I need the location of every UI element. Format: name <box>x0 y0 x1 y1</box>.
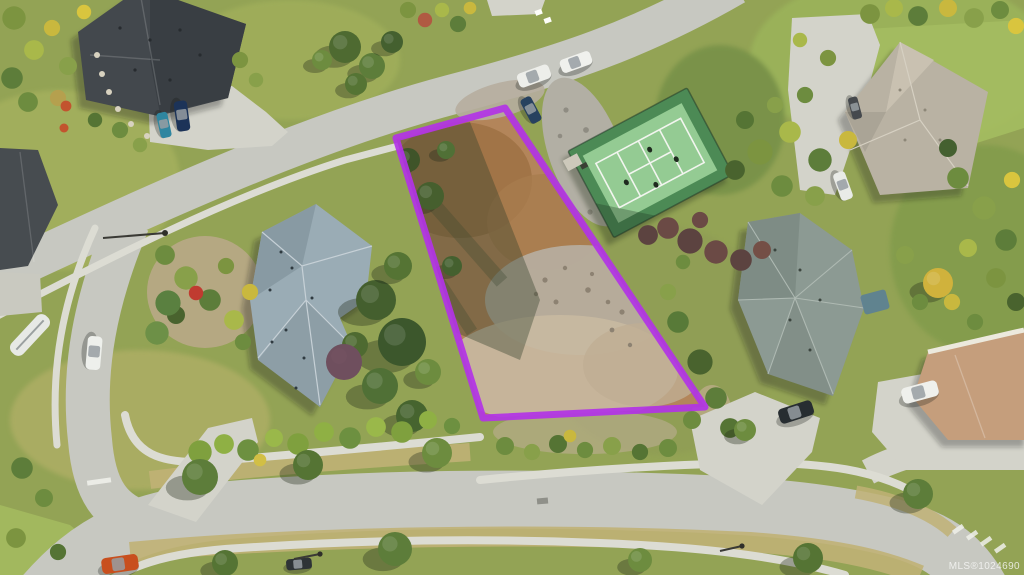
bush <box>18 92 38 112</box>
vent <box>774 249 777 252</box>
bush <box>964 8 984 28</box>
vent <box>118 26 121 29</box>
bush <box>400 2 416 18</box>
rubble-stone <box>590 272 594 276</box>
bush <box>2 6 25 29</box>
bush <box>912 294 928 310</box>
bush <box>218 258 234 274</box>
flower-bush <box>60 124 69 133</box>
bush <box>683 411 701 429</box>
vent <box>280 251 283 254</box>
vent <box>198 53 201 56</box>
vent <box>168 78 171 81</box>
bush <box>676 255 690 269</box>
bush <box>391 421 413 443</box>
bush <box>632 444 648 460</box>
vent <box>904 139 907 142</box>
lamp-head <box>162 230 168 236</box>
bush <box>419 411 437 429</box>
stepping-stone <box>94 52 100 58</box>
bush <box>839 131 857 149</box>
bush <box>725 160 745 180</box>
bush <box>242 284 258 300</box>
vent <box>819 299 822 302</box>
bush <box>660 284 676 300</box>
bush <box>995 229 1017 251</box>
aerial-scene: MLS®1024690 <box>0 0 1024 575</box>
stepping-stone <box>106 89 112 95</box>
bush <box>265 429 283 447</box>
dark-shrub <box>657 217 679 239</box>
bush <box>797 87 813 103</box>
storm-drain <box>537 497 548 504</box>
bush <box>908 6 928 26</box>
bush <box>435 3 449 17</box>
rubble-stone <box>585 287 591 293</box>
dark-shrub <box>677 228 702 253</box>
bush <box>687 349 712 374</box>
bush <box>736 111 754 129</box>
bush <box>1 67 23 89</box>
bush <box>77 5 91 19</box>
lamp-head <box>317 551 322 556</box>
bush <box>747 139 772 164</box>
bush <box>112 122 128 138</box>
bush <box>991 1 1009 19</box>
bush <box>1008 18 1024 34</box>
vent <box>271 341 274 344</box>
bush <box>214 434 234 454</box>
dark-shrub <box>753 241 771 259</box>
bush <box>133 138 147 152</box>
bush <box>767 97 783 113</box>
vent <box>148 38 151 41</box>
mls-watermark: MLS®1024690 <box>949 561 1020 572</box>
bush <box>235 334 251 350</box>
flower-bush <box>189 286 203 300</box>
rubble-stone <box>542 277 547 282</box>
rubble-stone <box>610 328 615 333</box>
bush <box>972 196 995 219</box>
bush <box>59 57 77 75</box>
bush <box>896 246 914 264</box>
bush <box>986 268 1006 288</box>
rubble-stone <box>606 300 611 305</box>
rubble-stone <box>563 266 567 270</box>
bush <box>967 314 983 330</box>
bush <box>860 4 880 24</box>
stepping-stone <box>99 71 105 77</box>
bush <box>603 437 621 455</box>
bush <box>224 310 244 330</box>
bush <box>959 239 977 257</box>
bush <box>366 417 386 437</box>
dark-shrub <box>638 225 658 245</box>
vent <box>809 349 812 352</box>
bush <box>659 439 677 457</box>
vent <box>295 387 298 390</box>
bush <box>11 457 33 479</box>
bush <box>450 16 466 32</box>
bush <box>793 33 807 47</box>
bush <box>805 186 825 206</box>
vent <box>285 329 288 332</box>
vent <box>303 357 306 360</box>
bush <box>779 121 801 143</box>
bush <box>339 427 361 449</box>
bush <box>24 40 44 60</box>
bush <box>35 489 53 507</box>
bush <box>44 20 60 36</box>
bush <box>939 139 957 157</box>
bush <box>1004 172 1020 188</box>
plum-tree-highlight <box>331 348 347 364</box>
bush <box>155 290 180 315</box>
bush <box>50 544 66 560</box>
bush <box>524 444 540 460</box>
dry-grass-clump <box>564 430 577 443</box>
stone <box>583 127 589 133</box>
vent <box>899 89 902 92</box>
dark-shrub <box>704 240 727 263</box>
bush <box>577 442 593 458</box>
stepping-stone <box>115 106 121 112</box>
bush <box>464 2 477 15</box>
vent <box>799 269 802 272</box>
bush <box>667 311 689 333</box>
vent <box>924 109 927 112</box>
bush <box>6 528 26 548</box>
bush <box>232 52 248 68</box>
stepping-stone <box>128 121 134 127</box>
stone <box>558 134 563 139</box>
bush <box>145 321 168 344</box>
driveway-island-bush <box>820 50 836 66</box>
dark-shrub <box>730 249 752 271</box>
bush <box>88 113 102 127</box>
aerial-listing-photo: MLS®1024690 <box>0 0 1024 575</box>
bush <box>705 387 727 409</box>
flower-bush <box>254 454 267 467</box>
bush <box>947 167 969 189</box>
house-top-left <box>71 0 246 124</box>
vent <box>133 68 136 71</box>
bush <box>771 175 793 197</box>
bush <box>808 148 831 171</box>
lamp-head <box>739 543 744 548</box>
vent <box>789 319 792 322</box>
vent <box>269 289 272 292</box>
bush <box>496 437 514 455</box>
vent <box>311 297 314 300</box>
bush <box>944 294 960 310</box>
vent <box>291 267 294 270</box>
stepping-stone <box>144 133 150 139</box>
bush <box>444 418 460 434</box>
patio-far-left <box>0 272 42 316</box>
bush <box>249 73 263 87</box>
bush <box>314 422 334 442</box>
flower-bush <box>418 13 432 27</box>
dark-shrub <box>692 212 708 228</box>
rubble-stone <box>619 309 624 314</box>
rubble-stone <box>554 300 559 305</box>
vent <box>178 28 181 31</box>
flower-bush <box>61 101 72 112</box>
stone <box>563 107 568 112</box>
vent <box>939 139 942 142</box>
rubble-stone <box>628 343 632 347</box>
bush <box>155 245 175 265</box>
